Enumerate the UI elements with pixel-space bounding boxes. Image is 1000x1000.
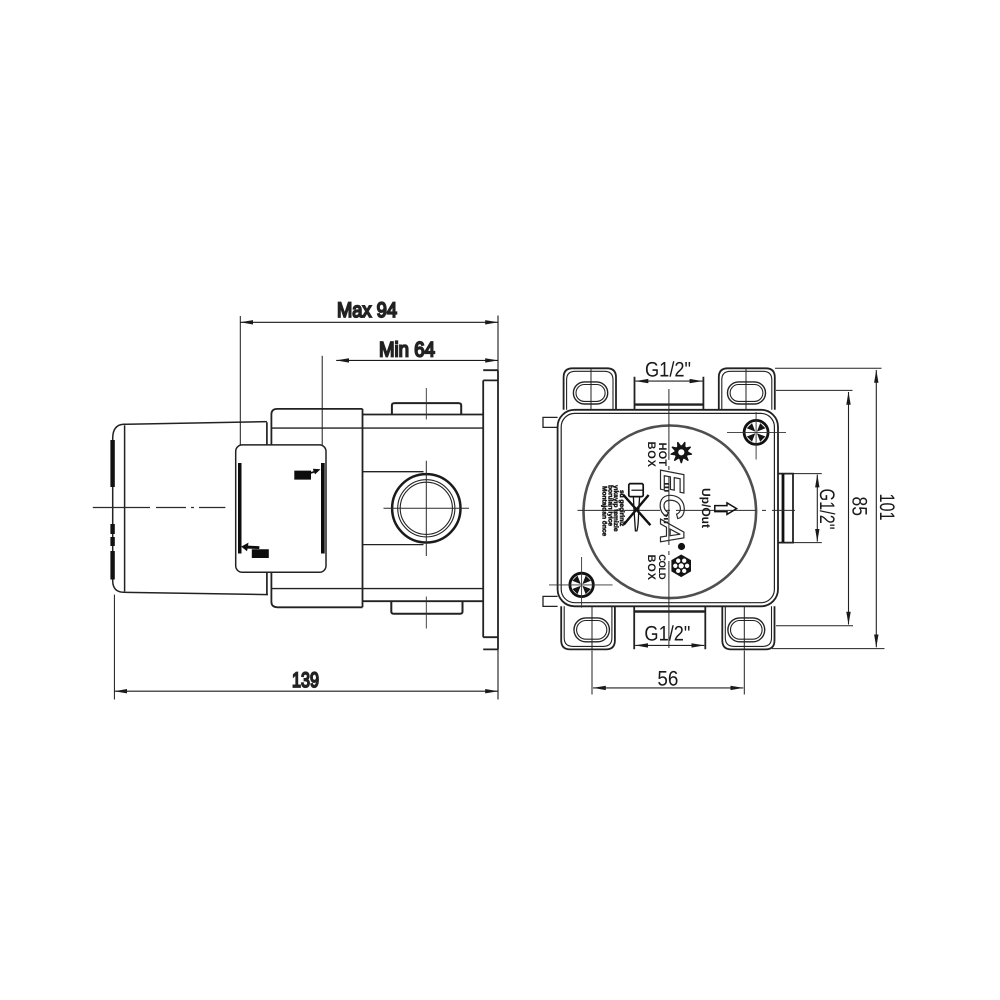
svg-text:BOX: BOX xyxy=(645,442,657,468)
svg-text:G1/2": G1/2" xyxy=(645,358,691,381)
svg-text:ECA: ECA xyxy=(653,470,691,546)
svg-text:Max 94: Max 94 xyxy=(337,299,397,322)
svg-text:BOX: BOX xyxy=(645,555,657,581)
svg-text:Min 64: Min 64 xyxy=(379,339,435,362)
svg-text:56: 56 xyxy=(657,667,678,690)
svg-text:G1/2": G1/2" xyxy=(815,489,838,530)
svg-text:Up/Out: Up/Out xyxy=(699,488,713,528)
svg-text:101: 101 xyxy=(875,494,898,521)
svg-text:G1/2": G1/2" xyxy=(644,623,690,646)
svg-text:139: 139 xyxy=(292,669,319,692)
svg-text:85: 85 xyxy=(847,497,870,517)
